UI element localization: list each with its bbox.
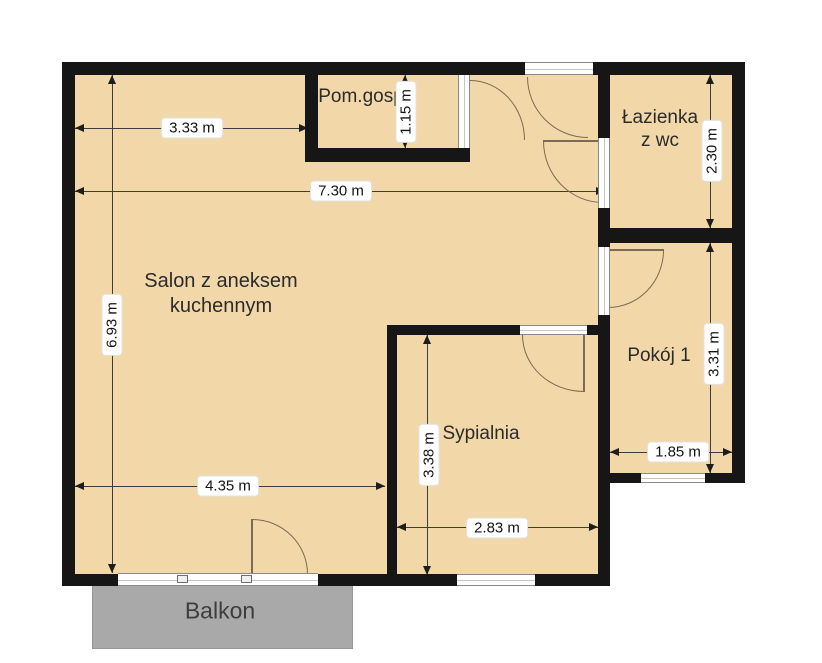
dim-label-3-33: 3.33 m bbox=[161, 118, 223, 139]
dim-label-2-83: 2.83 m bbox=[466, 518, 528, 539]
window-mullion bbox=[177, 575, 188, 583]
dim-label-1-15: 1.15 m bbox=[396, 81, 417, 143]
wall-sypialnia-top-right bbox=[587, 325, 610, 335]
dim-arrow bbox=[723, 448, 732, 456]
dim-arrow bbox=[75, 187, 84, 195]
dim-arrow bbox=[108, 75, 116, 84]
wall-top-right bbox=[593, 62, 745, 75]
dim-arrow bbox=[706, 219, 714, 228]
dim-arrow bbox=[706, 243, 714, 252]
dim-arrow bbox=[706, 75, 714, 84]
pokoj1-window bbox=[641, 473, 705, 483]
dim-arrow bbox=[376, 482, 385, 490]
dim-arrow bbox=[397, 523, 406, 531]
wall-right bbox=[732, 62, 745, 483]
dim-arrow bbox=[706, 464, 714, 473]
wall-lazienka-pokoj1-divider bbox=[598, 228, 745, 243]
room-label-sypialnia: Sypialnia bbox=[442, 423, 519, 445]
wall-top-left bbox=[62, 62, 525, 75]
dim-arrow bbox=[75, 482, 84, 490]
door-leaf-balkon bbox=[251, 519, 253, 574]
wall-pomgosp-bottom bbox=[305, 148, 470, 162]
sypialnia-door bbox=[520, 325, 587, 335]
dim-label-7-30: 7.30 m bbox=[310, 181, 372, 202]
dim-arrow bbox=[423, 335, 431, 344]
balcony-window bbox=[118, 573, 318, 586]
dim-label-1-85: 1.85 m bbox=[647, 442, 709, 463]
room-label-salon: Salon z aneksem kuchennym bbox=[141, 269, 301, 319]
lazienka-door bbox=[598, 138, 610, 208]
entrance-door bbox=[525, 62, 593, 75]
pokoj1-door bbox=[598, 247, 610, 315]
dim-label-6-93: 6.93 m bbox=[102, 294, 123, 356]
door-leaf-pokoj1 bbox=[608, 249, 664, 251]
dim-label-3-31: 3.31 m bbox=[704, 323, 725, 385]
dim-label-2-30: 2.30 m bbox=[702, 120, 723, 182]
floor-plan: Salon z aneksem kuchennym Pom.gosp Łazie… bbox=[0, 0, 822, 663]
sypialnia-window bbox=[457, 574, 535, 586]
wall-pomgosp-left bbox=[305, 62, 318, 162]
room-label-pokoj1: Pokój 1 bbox=[627, 345, 690, 367]
window-mullion bbox=[241, 575, 252, 583]
dim-arrow bbox=[610, 448, 619, 456]
wall-sypialnia-left bbox=[387, 325, 397, 586]
dim-arrow bbox=[589, 523, 598, 531]
room-label-lazienka: Łazienka z wc bbox=[618, 106, 702, 152]
dim-label-4-35: 4.35 m bbox=[197, 476, 259, 497]
door-leaf-sypialnia bbox=[583, 335, 585, 392]
pomgosp-door bbox=[458, 75, 470, 148]
dim-arrow bbox=[108, 564, 116, 573]
dim-arrow bbox=[75, 124, 84, 132]
wall-left bbox=[62, 62, 75, 586]
door-leaf-lazienka bbox=[543, 140, 603, 142]
wall-sypialnia-top-left bbox=[387, 325, 520, 335]
room-label-balkon: Balkon bbox=[185, 598, 255, 625]
wall-mid-lower bbox=[598, 315, 610, 586]
dim-label-3-38: 3.38 m bbox=[419, 424, 440, 486]
room-label-pomgosp: Pom.gosp bbox=[318, 86, 404, 108]
wall-mid-upper bbox=[598, 75, 610, 138]
